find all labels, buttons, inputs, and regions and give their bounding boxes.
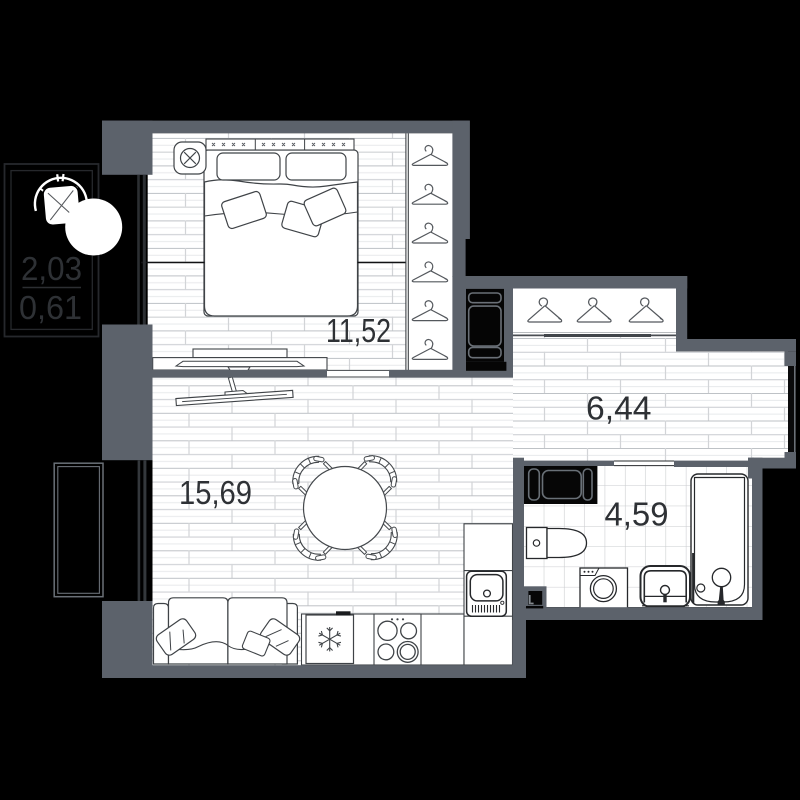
svg-text:11,52: 11,52 [326, 312, 391, 349]
svg-text:4,59: 4,59 [605, 496, 669, 533]
svg-text:15,69: 15,69 [179, 474, 252, 511]
svg-text:0,61: 0,61 [19, 289, 82, 326]
svg-text:2,03: 2,03 [21, 250, 82, 287]
svg-text:6,44: 6,44 [586, 390, 652, 427]
